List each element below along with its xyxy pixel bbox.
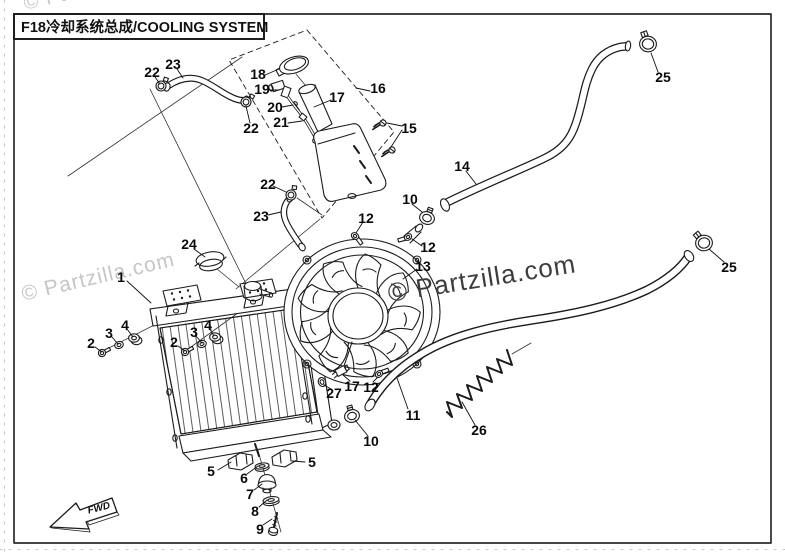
cooling-fan bbox=[284, 223, 440, 388]
callout-11: 11 bbox=[406, 408, 421, 422]
callout-10-top: 10 bbox=[402, 192, 418, 206]
fan-bolt-12-b bbox=[397, 231, 413, 245]
callout-26: 26 bbox=[471, 423, 487, 437]
screw-15-upper bbox=[372, 119, 387, 129]
collar-4-left bbox=[129, 334, 142, 345]
callout-17-fan: 17 bbox=[344, 379, 360, 393]
callout-10-bottom: 10 bbox=[363, 434, 379, 448]
bracket-5-left bbox=[228, 453, 253, 470]
callout-8: 8 bbox=[251, 504, 259, 518]
callout-2-right: 2 bbox=[170, 335, 178, 349]
callout-20: 20 bbox=[267, 100, 283, 114]
washer-3-left bbox=[114, 340, 124, 349]
callout-12-b: 12 bbox=[420, 240, 436, 254]
callout-23-lower: 23 bbox=[253, 209, 269, 223]
screw-15-lower bbox=[381, 146, 396, 156]
radiator-outlet-pipe bbox=[328, 420, 340, 430]
callout-6: 6 bbox=[240, 471, 248, 485]
diagram-title: F18冷却系统总成/COOLING SYSTEM bbox=[21, 16, 268, 37]
callout-22-a: 22 bbox=[144, 65, 160, 79]
filler-neck-17 bbox=[298, 83, 332, 132]
elbow-fitting-19 bbox=[268, 80, 291, 98]
callout-5-left: 5 bbox=[207, 464, 215, 478]
callout-18: 18 bbox=[250, 67, 266, 81]
reservoir-hose-upper bbox=[163, 78, 251, 104]
bolt-9 bbox=[268, 512, 281, 536]
callout-17-neck: 17 bbox=[329, 90, 345, 104]
callout-25-right: 25 bbox=[721, 260, 737, 274]
cooling-system-parts-diagram: F18冷却系统总成/COOLING SYSTEM © Partzilla.com… bbox=[0, 0, 785, 556]
hose-clamp-10-top bbox=[418, 205, 438, 226]
callout-16: 16 bbox=[370, 81, 386, 95]
spring-26 bbox=[447, 350, 512, 417]
diagram-title-box: F18冷却系统总成/COOLING SYSTEM bbox=[13, 13, 265, 40]
mount-7 bbox=[258, 475, 276, 493]
callout-13: 13 bbox=[415, 259, 431, 273]
hose-clamp-25-right bbox=[693, 229, 714, 253]
callout-5-right: 5 bbox=[308, 455, 316, 469]
callout-24: 24 bbox=[181, 237, 197, 251]
reservoir-tank-16 bbox=[314, 124, 386, 202]
callout-22-c: 22 bbox=[260, 177, 276, 191]
callout-19: 19 bbox=[254, 82, 270, 96]
upper-radiator-hose bbox=[439, 41, 632, 213]
callout-27: 27 bbox=[326, 386, 342, 400]
callout-21: 21 bbox=[273, 115, 289, 129]
callout-14: 14 bbox=[454, 159, 470, 173]
fan-hub bbox=[328, 288, 388, 344]
callout-12-a: 12 bbox=[358, 211, 374, 225]
hose-clamp-10-bottom bbox=[342, 404, 361, 424]
callout-4-right: 4 bbox=[204, 318, 212, 332]
callout-3-left: 3 bbox=[105, 326, 113, 340]
callout-2-left: 2 bbox=[87, 336, 95, 350]
callout-15: 15 bbox=[401, 121, 417, 135]
callout-25-top: 25 bbox=[655, 70, 671, 84]
callout-12-c: 12 bbox=[363, 380, 379, 394]
callout-4-left: 4 bbox=[121, 318, 129, 332]
callout-22-b: 22 bbox=[243, 121, 259, 135]
callout-1-radiator: 1 bbox=[117, 270, 125, 284]
callout-3-right: 3 bbox=[190, 325, 198, 339]
callout-9: 9 bbox=[256, 522, 264, 536]
bolt-2-left bbox=[97, 346, 112, 358]
reservoir-cap-18 bbox=[276, 53, 311, 77]
callout-7: 7 bbox=[246, 487, 254, 501]
callout-23-upper: 23 bbox=[165, 57, 181, 71]
hose-clamp-25-top bbox=[638, 30, 658, 53]
bracket-5-right bbox=[272, 450, 297, 467]
